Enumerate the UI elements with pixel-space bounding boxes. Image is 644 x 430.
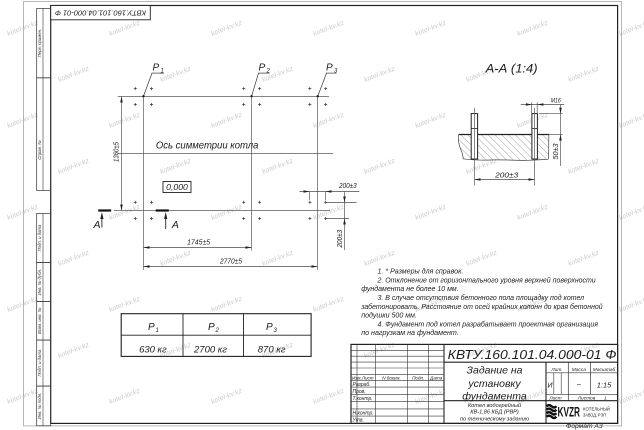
svg-text:Перв. примен.: Перв. примен. xyxy=(37,29,42,58)
svg-text:Р: Р xyxy=(259,63,266,74)
svg-text:Н.контр.: Н.контр. xyxy=(353,411,374,417)
svg-text:Р: Р xyxy=(208,322,215,333)
svg-text:1: 1 xyxy=(604,396,607,402)
svg-text:Утв.: Утв. xyxy=(353,418,364,424)
svg-text:М16: М16 xyxy=(551,97,561,104)
svg-text:200±3: 200±3 xyxy=(494,172,518,179)
svg-text:1: 1 xyxy=(161,69,164,75)
svg-text:фундамента не более 10 мм.: фундамента не более 10 мм. xyxy=(361,284,459,293)
svg-text:Ось симметрии котла: Ось симметрии котла xyxy=(156,141,259,152)
svg-text:Формат А3: Формат А3 xyxy=(566,423,603,430)
svg-text:Задание на: Задание на xyxy=(467,365,523,377)
svg-text:2770±5: 2770±5 xyxy=(219,257,243,266)
svg-text:ЗАВОД, РЭП: ЗАВОД, РЭП xyxy=(583,412,606,417)
svg-text:Р: Р xyxy=(153,63,160,74)
svg-text:Подп. и дата: Подп. и дата xyxy=(37,349,42,377)
svg-text:по техническому заданию: по техническому заданию xyxy=(460,417,530,423)
svg-text:Масштаб: Масштаб xyxy=(593,367,616,373)
svg-text:Справ. №: Справ. № xyxy=(37,140,42,160)
svg-text:1: 1 xyxy=(156,328,159,334)
svg-text:1360±5: 1360±5 xyxy=(112,141,121,162)
svg-text:1. * Размеры для справок.: 1. * Размеры для справок. xyxy=(378,267,464,276)
svg-text:0,000: 0,000 xyxy=(166,182,188,192)
svg-text:Р: Р xyxy=(326,63,333,74)
svg-text:N докум.: N докум. xyxy=(382,375,401,380)
svg-text:по нагрузкам на фундамент.: по нагрузкам на фундамент. xyxy=(361,328,459,337)
svg-text:Изм.Лист: Изм.Лист xyxy=(352,375,374,380)
svg-text:200±3: 200±3 xyxy=(337,230,344,249)
svg-text:Р: Р xyxy=(266,322,273,333)
svg-text:Инв. № подл.: Инв. № подл. xyxy=(37,393,42,420)
svg-text:1:15: 1:15 xyxy=(597,381,612,390)
svg-text:Масса: Масса xyxy=(572,367,587,373)
svg-text:Листов: Листов xyxy=(577,396,596,402)
svg-text:870 кг: 870 кг xyxy=(258,344,286,355)
svg-text:Инв. № дубл.: Инв. № дубл. xyxy=(37,269,42,295)
svg-text:КВ-1,86 КБД (РВР): КВ-1,86 КБД (РВР) xyxy=(470,409,519,415)
svg-text:Разраб.: Разраб. xyxy=(353,382,371,388)
svg-text:установку: установку xyxy=(467,378,521,390)
svg-text:1745±5: 1745±5 xyxy=(187,238,211,247)
svg-text:А: А xyxy=(171,219,179,231)
svg-text:Лит.: Лит. xyxy=(550,367,562,373)
svg-text:Т.контр.: Т.контр. xyxy=(353,396,373,402)
svg-text:Р: Р xyxy=(148,322,155,333)
svg-text:КВТУ.160.101.04.000-01 Ф: КВТУ.160.101.04.000-01 Ф xyxy=(55,8,146,17)
svg-text:630 кг: 630 кг xyxy=(139,344,167,355)
svg-text:подушки 500 мм.: подушки 500 мм. xyxy=(361,311,417,320)
svg-text:2: 2 xyxy=(266,69,271,75)
svg-text:Подп. и дата: Подп. и дата xyxy=(37,224,42,252)
svg-text:Дата: Дата xyxy=(429,375,443,380)
svg-text:забетонировать. Расстояние от: забетонировать. Расстояние от осей крайн… xyxy=(360,302,602,311)
svg-text:4. Фундамент под котел разраба: 4. Фундамент под котел разрабатывает про… xyxy=(378,319,599,328)
svg-text:КОТЕЛЬНЫЙ: КОТЕЛЬНЫЙ xyxy=(583,405,610,412)
svg-text:КВТУ.160.101.04.000-01 Ф: КВТУ.160.101.04.000-01 Ф xyxy=(448,347,617,362)
svg-text:2: 2 xyxy=(215,328,220,334)
svg-text:А-А (1:4): А-А (1:4) xyxy=(484,63,537,75)
svg-text:200±3: 200±3 xyxy=(338,183,357,190)
svg-text:Лист: Лист xyxy=(548,396,561,402)
svg-text:–: – xyxy=(576,381,581,388)
svg-text:А: А xyxy=(93,219,101,231)
svg-text:Пров.: Пров. xyxy=(353,389,366,395)
svg-text:2. Отклонение от горизонтально: 2. Отклонение от горизонтального уровня … xyxy=(377,275,596,284)
svg-text:50±3: 50±3 xyxy=(553,143,560,159)
svg-text:Взам. инв. №: Взам. инв. № xyxy=(37,307,42,334)
svg-text:3. В случае отсутствия бетонно: 3. В случае отсутствия бетонного пола пл… xyxy=(378,293,585,302)
svg-text:KVZR: KVZR xyxy=(558,405,581,420)
svg-text:фундамента: фундамента xyxy=(462,391,527,403)
svg-text:Подп.: Подп. xyxy=(412,375,424,380)
svg-text:Котел водогрейный: Котел водогрейный xyxy=(468,402,521,409)
svg-text:2700 кг: 2700 кг xyxy=(193,344,227,355)
